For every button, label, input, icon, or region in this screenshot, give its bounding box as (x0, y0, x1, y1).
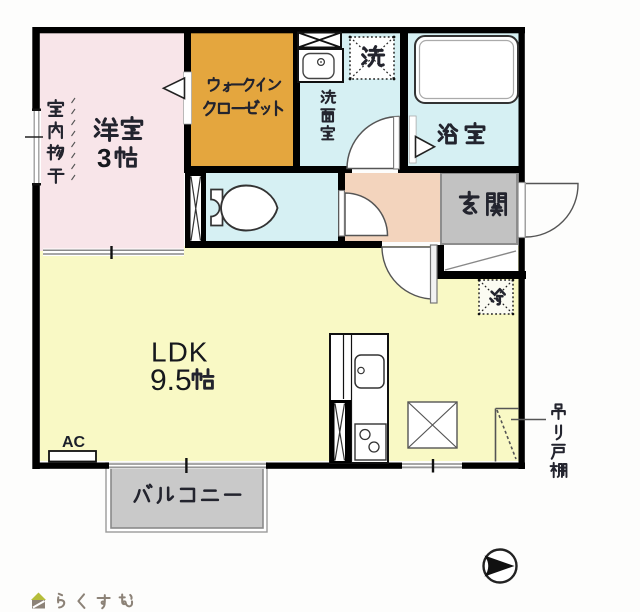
svg-text:3: 3 (97, 143, 111, 173)
svg-text:LDK: LDK (151, 337, 208, 368)
svg-text:9.5: 9.5 (150, 364, 192, 397)
svg-text:AC: AC (62, 434, 86, 451)
